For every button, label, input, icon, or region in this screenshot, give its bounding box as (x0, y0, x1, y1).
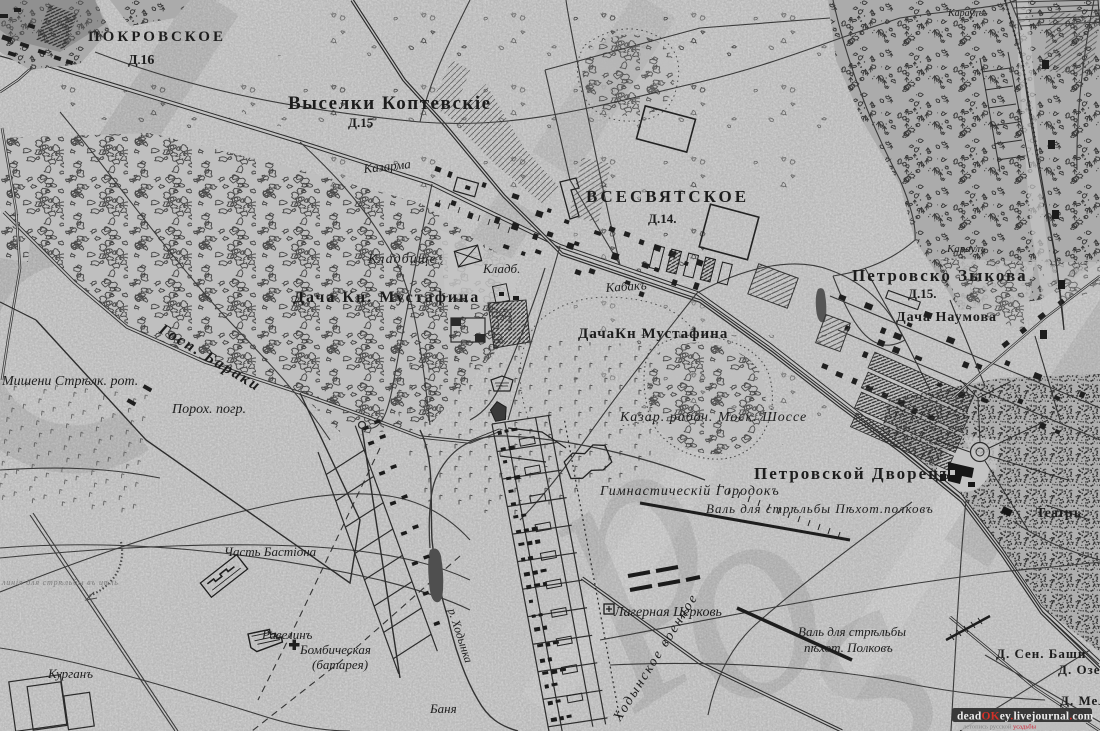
svg-text:Мишени Стрѣлк. рот.: Мишени Стрѣлк. рот. (1, 374, 138, 389)
svg-text:Дача Наумова: Дача Наумова (896, 310, 997, 325)
svg-text:пѣхот. Полковъ: пѣхот. Полковъ (804, 640, 893, 655)
svg-text:Казар. рабоч. Моск. Шоссе: Казар. рабоч. Моск. Шоссе (619, 410, 807, 425)
svg-text:Порох. погр.: Порох. погр. (171, 402, 246, 417)
svg-text:deadOKey.livejournal.com: deadOKey.livejournal.com (957, 711, 1094, 723)
svg-text:Д.15: Д.15 (348, 115, 374, 130)
svg-text:Д.14.: Д.14. (648, 211, 676, 226)
svg-text:Курганъ: Курганъ (47, 666, 93, 681)
svg-text:Кладбище: Кладбище (367, 252, 437, 267)
svg-text:Петровской Дворецъ: Петровской Дворецъ (754, 464, 952, 483)
svg-text:Часть Бастіона: Часть Бастіона (224, 544, 317, 559)
svg-text:Д.15.: Д.15. (908, 286, 936, 301)
svg-text:ПОКРОВСКОЕ: ПОКРОВСКОЕ (88, 29, 226, 45)
svg-text:Лагерная Церковь: Лагерная Церковь (613, 605, 722, 620)
svg-text:Кабакъ: Кабакъ (604, 277, 647, 295)
svg-text:(батарея): (батарея) (312, 657, 368, 672)
svg-text:Театръ: Театръ (1036, 506, 1081, 521)
svg-text:Валь для стрѣльбы Пѣхот.полков: Валь для стрѣльбы Пѣхот.полковъ (706, 501, 934, 516)
svg-text:Д.16: Д.16 (128, 53, 154, 68)
svg-text:летопись русской усадьбы: летопись русской усадьбы (963, 724, 1037, 731)
svg-text:Бомбическая: Бомбическая (299, 642, 371, 657)
svg-text:Петровско Зыкова: Петровско Зыкова (852, 266, 1028, 285)
svg-text:Валь для стрѣльбы: Валь для стрѣльбы (798, 624, 906, 639)
svg-text:Караулъ: Караулъ (947, 8, 983, 19)
svg-text:Гимнастическій Городокъ: Гимнастическій Городокъ (599, 484, 780, 499)
svg-text:Дача Кн. Мустафина: Дача Кн. Мустафина (293, 289, 480, 306)
svg-text:ДачаКн Мустафина: ДачаКн Мустафина (578, 326, 728, 342)
svg-text:Д. Озе: Д. Озе (1058, 662, 1100, 677)
svg-text:линія для стрѣльбы въ цѣль: линія для стрѣльбы въ цѣль (1, 578, 119, 587)
svg-text:Д. Сен. Башн: Д. Сен. Башн (996, 646, 1086, 661)
svg-text:Караулъ: Караулъ (946, 243, 986, 255)
svg-text:Кладб.: Кладб. (482, 261, 520, 276)
svg-text:Равелинъ: Равелинъ (261, 627, 313, 642)
svg-text:Баня: Баня (429, 701, 457, 716)
svg-text:Выселки Коптевскіе: Выселки Коптевскіе (288, 93, 492, 114)
svg-text:Д. Мел: Д. Мел (1060, 693, 1100, 708)
svg-text:ВСЕСВЯТСКОЕ: ВСЕСВЯТСКОЕ (586, 187, 749, 206)
